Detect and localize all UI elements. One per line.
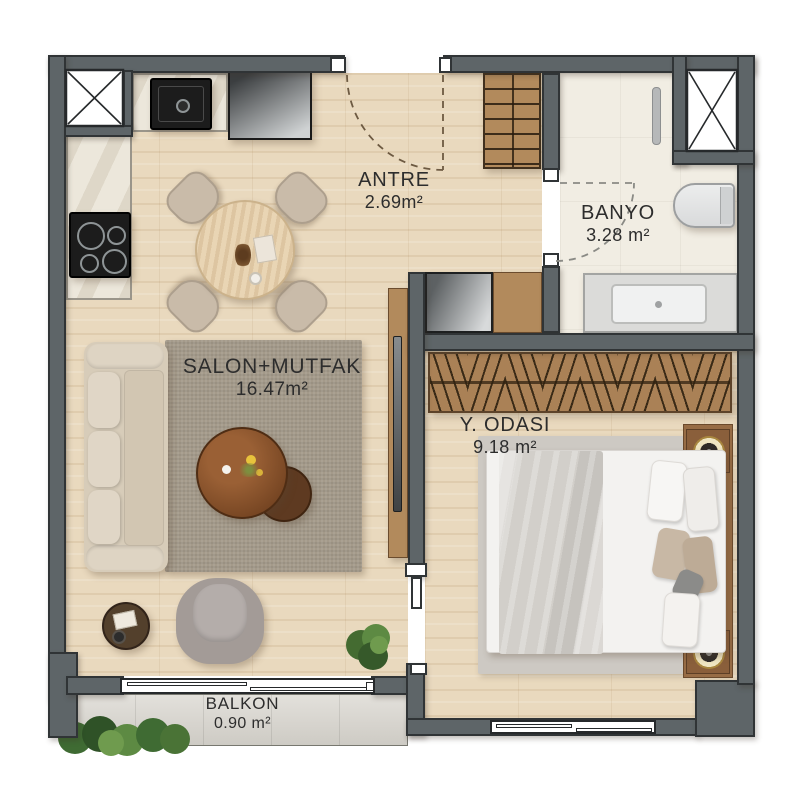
salon-area: 16.47m² bbox=[172, 379, 372, 402]
appliance-cabinet bbox=[425, 272, 493, 333]
table-decor-twig bbox=[235, 242, 251, 268]
sofa bbox=[84, 342, 168, 572]
wall-left bbox=[48, 55, 66, 700]
jamb-bath-bottom bbox=[543, 253, 559, 267]
balkon-area: 0.90 m² bbox=[165, 714, 320, 733]
armchair bbox=[176, 578, 264, 664]
vanity bbox=[583, 273, 738, 333]
wall-salon-bottom-right bbox=[371, 676, 411, 695]
room-label-banyo: BANYO 3.28 m² bbox=[552, 201, 684, 247]
pillow-white-3 bbox=[661, 592, 701, 648]
room-label-balkon: BALKON 0.90 m² bbox=[165, 694, 320, 734]
yodasi-area: 9.18 m² bbox=[405, 437, 605, 459]
sofa-back-cushion-3 bbox=[88, 490, 120, 544]
balcony-sliding-door bbox=[120, 678, 375, 694]
sofa-seat bbox=[124, 370, 164, 546]
wall-shaft2-bottom bbox=[672, 150, 755, 165]
bed-throw-blanket bbox=[499, 451, 603, 654]
jamb-bedroom-top bbox=[405, 563, 427, 577]
mug bbox=[112, 630, 126, 644]
cooktop bbox=[69, 212, 131, 278]
shoe-cabinet bbox=[483, 73, 541, 169]
jamb-bedroom-bottom bbox=[410, 663, 427, 675]
armchair-seat bbox=[193, 584, 247, 642]
sofa-back-cushion-2 bbox=[88, 431, 120, 487]
sofa-armrest-top bbox=[86, 344, 164, 369]
faucet bbox=[655, 301, 662, 308]
floor-plan: ANTRE 2.69m² BANYO 3.28 m² SALON+MUTFAK … bbox=[0, 0, 800, 800]
refrigerator bbox=[228, 71, 312, 140]
flower-white bbox=[222, 465, 231, 474]
sofa-armrest-bottom bbox=[86, 545, 164, 570]
bedroom-window bbox=[490, 720, 656, 734]
wall-corner-se bbox=[695, 680, 755, 737]
room-label-antre: ANTRE 2.69m² bbox=[328, 168, 460, 214]
wall-bath-left-lower bbox=[542, 266, 560, 333]
wall-bedroom-top bbox=[408, 333, 755, 351]
antre-wood-counter bbox=[493, 272, 542, 333]
balkon-name: BALKON bbox=[165, 694, 320, 714]
wall-left-balcony bbox=[48, 652, 78, 738]
jamb-entry-left bbox=[330, 57, 346, 73]
tv bbox=[393, 336, 402, 512]
yodasi-name: Y. ODASI bbox=[405, 413, 605, 437]
side-table bbox=[102, 602, 150, 650]
kitchen-sink bbox=[150, 78, 212, 130]
wall-shaft1-right bbox=[123, 70, 133, 128]
wardrobe-hangers bbox=[428, 352, 732, 413]
burner-large-2 bbox=[102, 249, 127, 274]
jamb-entry-right bbox=[439, 57, 452, 73]
book bbox=[113, 610, 138, 630]
dining-table bbox=[195, 200, 295, 300]
coffee-table-large bbox=[196, 427, 288, 519]
sink-drain bbox=[176, 99, 190, 113]
antre-area: 2.69m² bbox=[328, 192, 460, 214]
flower-stem bbox=[238, 463, 260, 477]
sofa-back-cushion-1 bbox=[88, 372, 120, 428]
wall-shaft2-left bbox=[672, 55, 687, 165]
towel-radiator bbox=[652, 87, 661, 145]
jamb-bath-top bbox=[543, 168, 559, 182]
wall-top-left bbox=[48, 55, 345, 73]
pillow-white-1 bbox=[646, 459, 688, 522]
wall-top-right bbox=[443, 55, 755, 73]
double-bed bbox=[486, 450, 726, 653]
pocket-door-leaf bbox=[411, 577, 422, 609]
room-label-salon: SALON+MUTFAK 16.47m² bbox=[172, 354, 372, 402]
antre-name: ANTRE bbox=[328, 168, 460, 192]
table-decor-cup bbox=[249, 272, 262, 285]
salon-name: SALON+MUTFAK bbox=[172, 354, 372, 379]
potted-plant bbox=[342, 622, 394, 672]
burner-large-1 bbox=[77, 222, 105, 250]
banyo-name: BANYO bbox=[552, 201, 684, 225]
pillow-white-2 bbox=[682, 466, 719, 533]
wall-shaft1-bottom bbox=[64, 125, 133, 137]
wall-salon-bottom-left bbox=[66, 676, 124, 695]
room-label-yodasi: Y. ODASI 9.18 m² bbox=[405, 413, 605, 459]
banyo-area: 3.28 m² bbox=[552, 225, 684, 247]
burner-small-2 bbox=[80, 254, 99, 273]
table-decor-card bbox=[253, 234, 277, 263]
burner-small-1 bbox=[107, 226, 126, 245]
toilet-tank bbox=[720, 187, 733, 224]
wall-bath-left-upper bbox=[542, 73, 560, 170]
